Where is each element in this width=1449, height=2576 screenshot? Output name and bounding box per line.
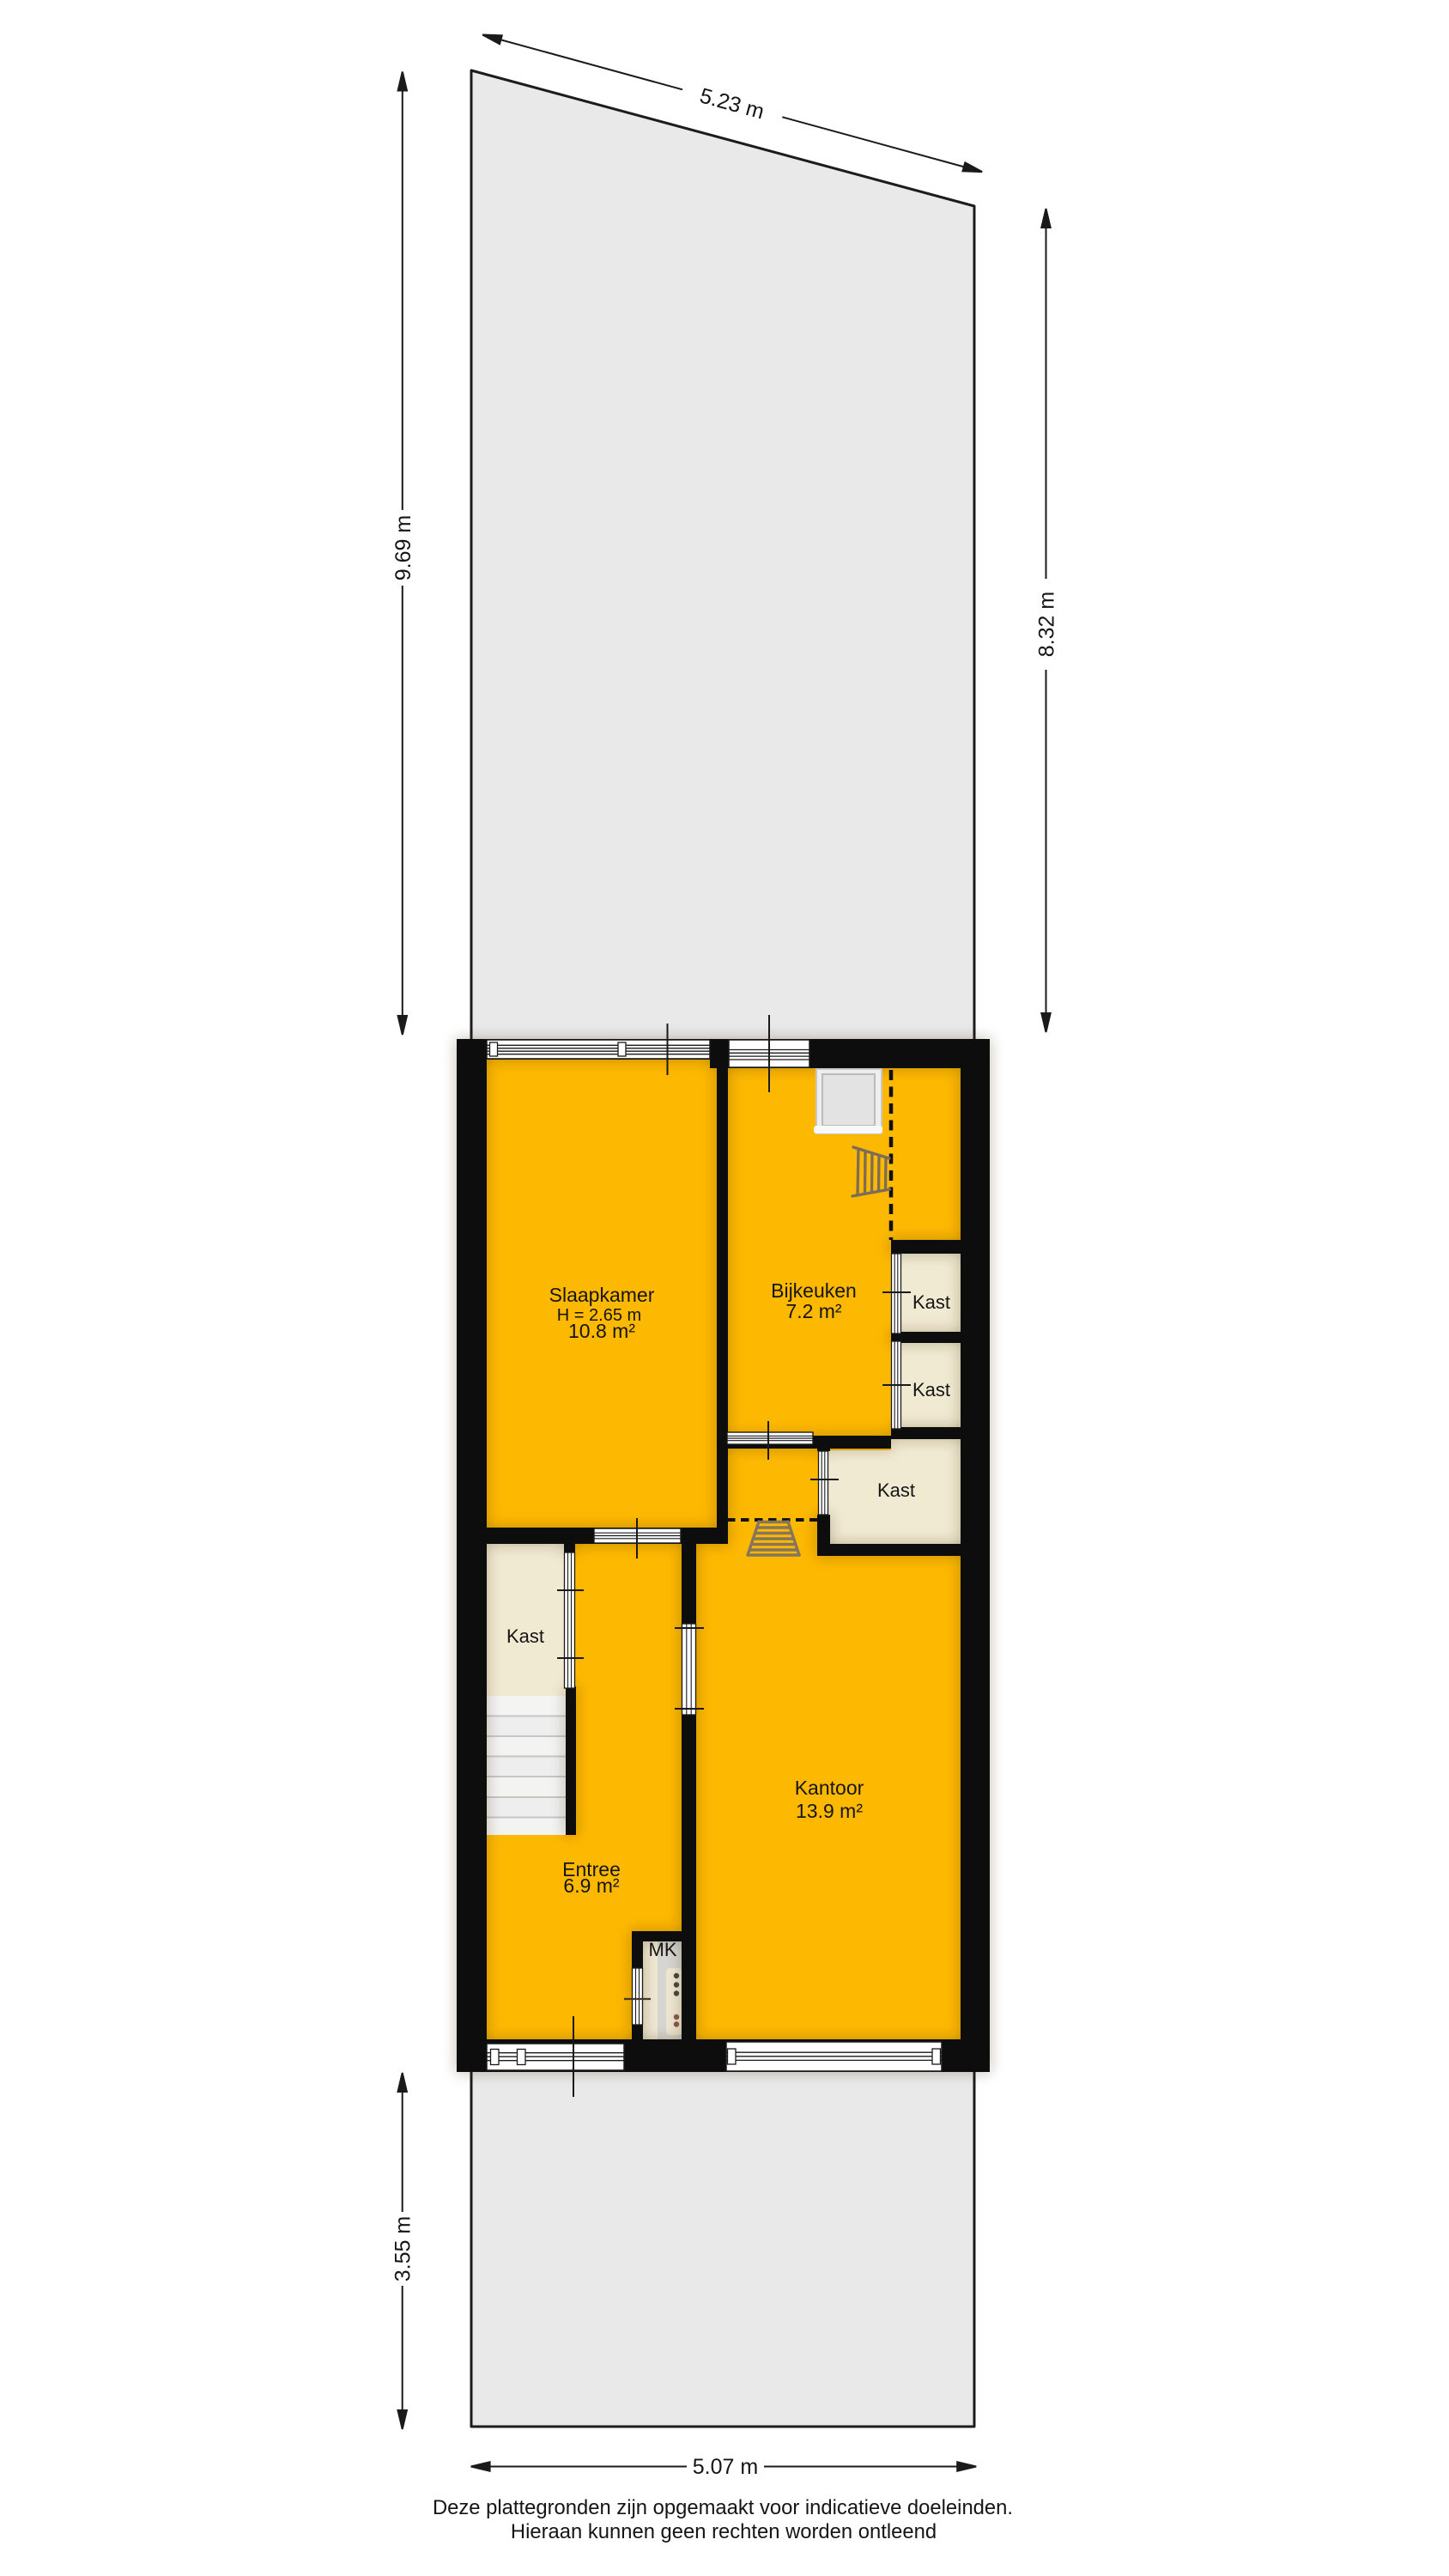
svg-text:3.55 m: 3.55 m: [391, 2216, 415, 2281]
svg-text:Kast: Kast: [912, 1379, 950, 1400]
svg-text:6.9 m²: 6.9 m²: [563, 1874, 620, 1897]
svg-text:Slaapkamer: Slaapkamer: [549, 1284, 655, 1306]
svg-text:Kast: Kast: [912, 1291, 950, 1313]
svg-text:Hieraan kunnen geen rechten wo: Hieraan kunnen geen rechten worden ontle…: [511, 2520, 937, 2543]
svg-text:Kantoor: Kantoor: [795, 1777, 864, 1799]
svg-text:Deze plattegronden zijn opgema: Deze plattegronden zijn opgemaakt voor i…: [433, 2496, 1013, 2519]
svg-text:MK: MK: [649, 1939, 677, 1960]
svg-text:7.2 m²: 7.2 m²: [785, 1300, 842, 1322]
svg-text:8.32 m: 8.32 m: [1035, 592, 1059, 657]
svg-text:13.9 m²: 13.9 m²: [796, 1800, 863, 1822]
svg-text:5.07 m: 5.07 m: [693, 2455, 758, 2479]
svg-text:Kast: Kast: [506, 1625, 544, 1647]
svg-text:10.8 m²: 10.8 m²: [568, 1320, 635, 1342]
svg-text:Kast: Kast: [877, 1479, 915, 1501]
svg-text:9.69 m: 9.69 m: [391, 515, 415, 580]
svg-text:Bijkeuken: Bijkeuken: [771, 1279, 857, 1302]
